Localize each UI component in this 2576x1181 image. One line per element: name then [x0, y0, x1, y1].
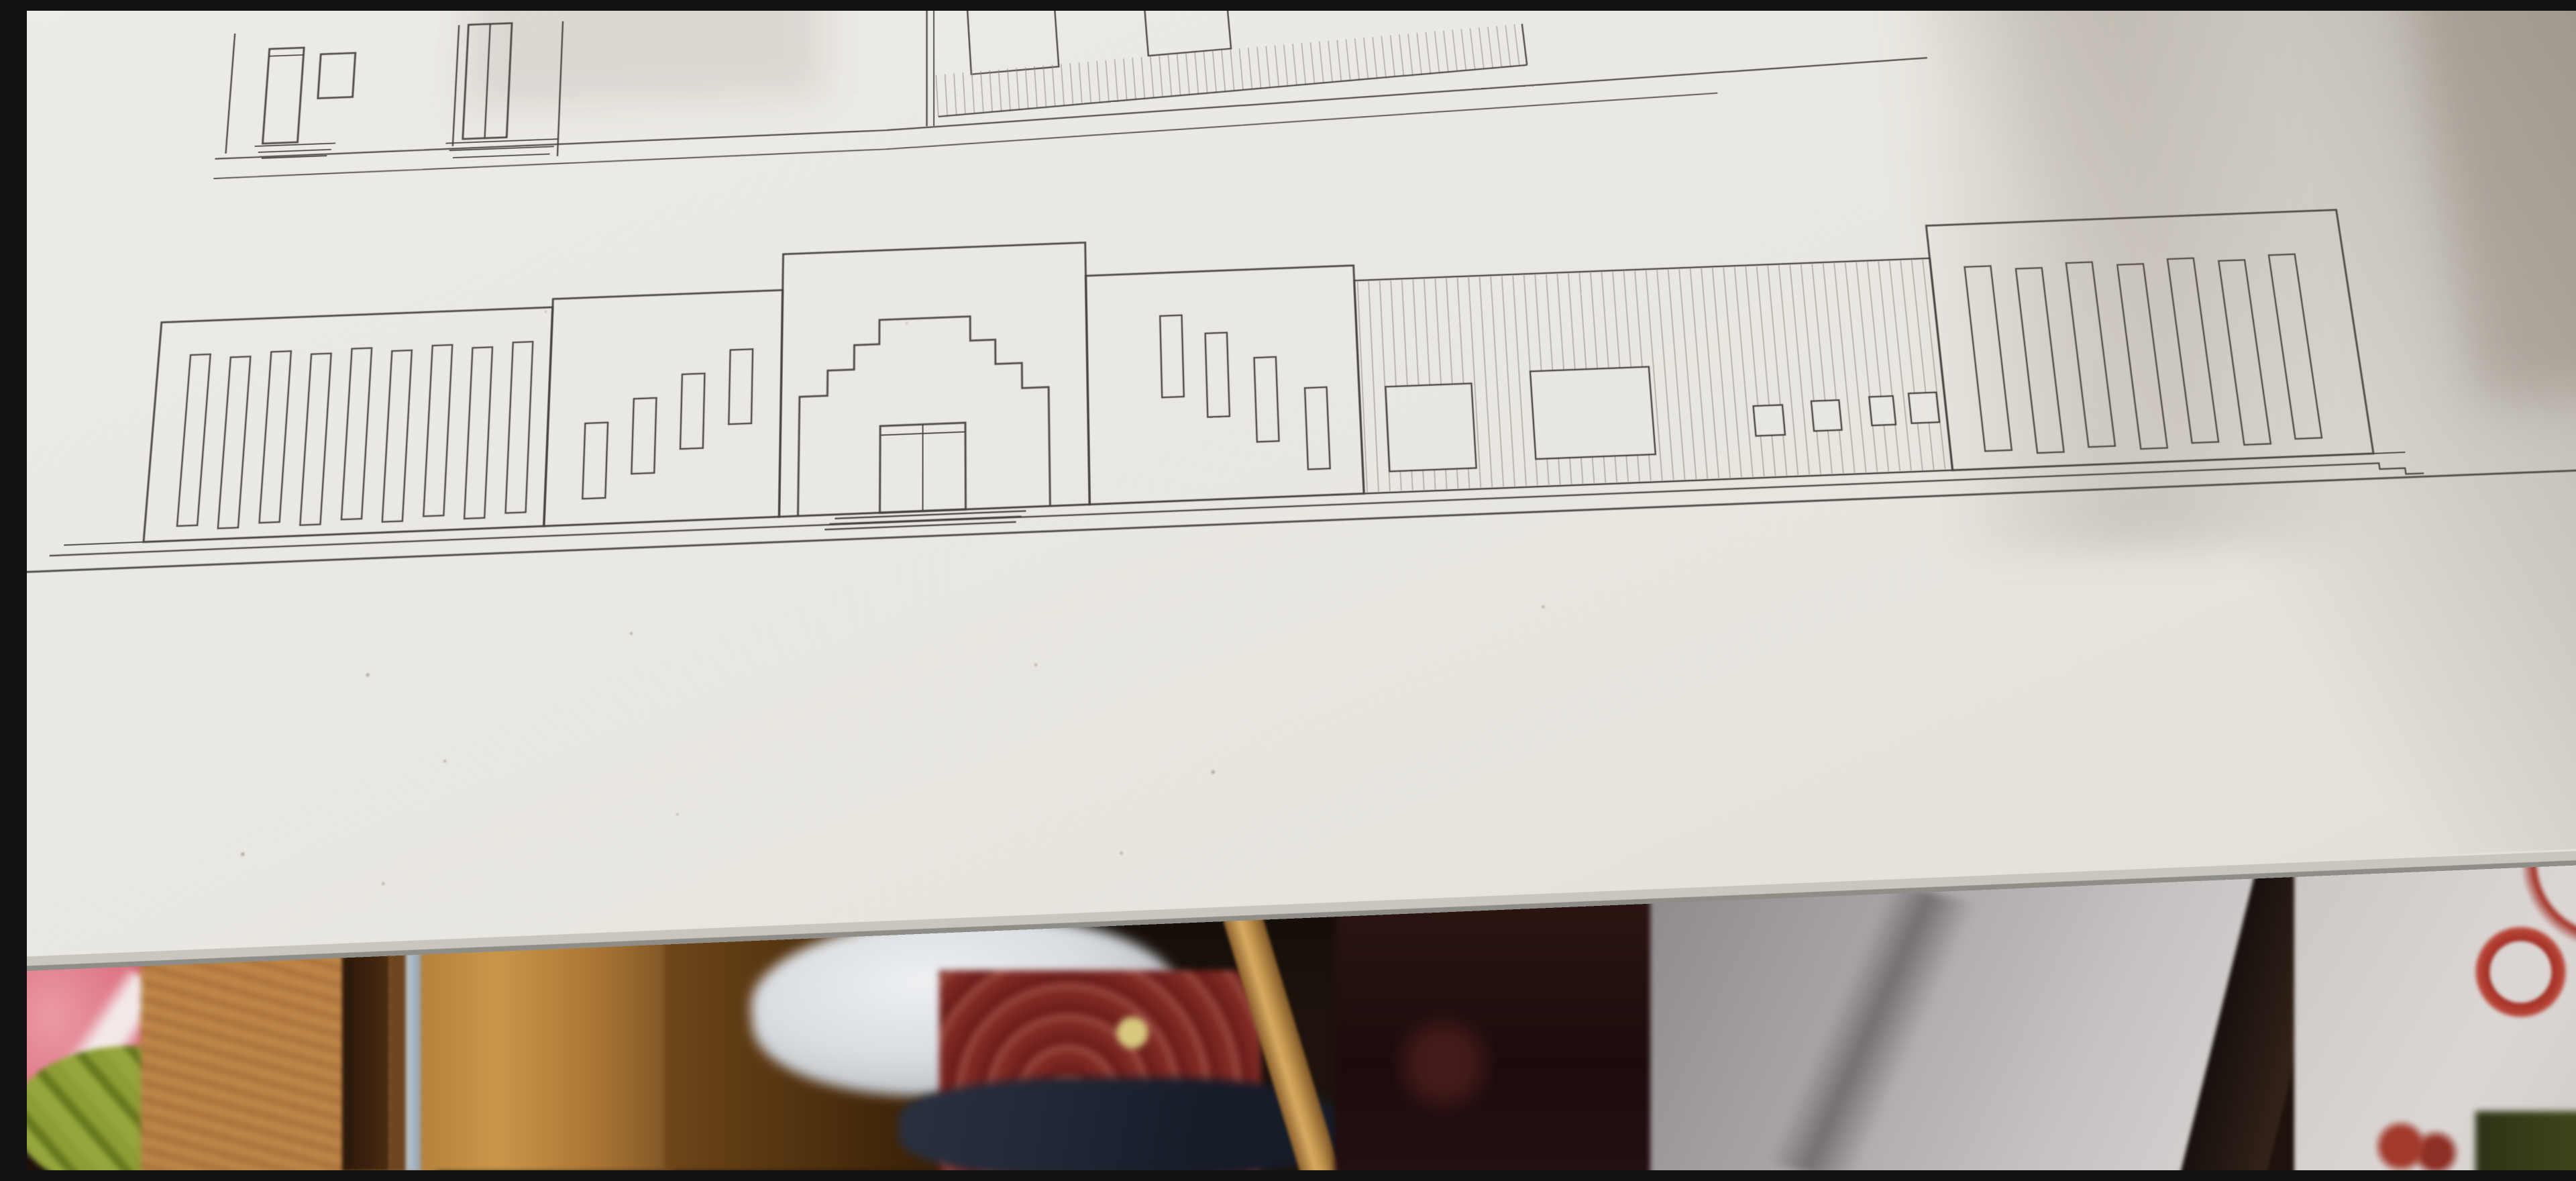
hatched-square-window-1: [1385, 383, 1476, 471]
upper-b-hatch-band-line: [936, 75, 938, 117]
right-building-slots-3: [2066, 262, 2115, 448]
upper-b-hatch-band-line: [1355, 38, 1359, 80]
upper-b-hatch-band-line: [1132, 58, 1136, 99]
right-building-slots-6: [2218, 260, 2271, 445]
upper-b-hatch-band-line: [1230, 49, 1234, 91]
upper-baseline-1: [215, 58, 1931, 159]
hatched-wall-hatching-line: [1868, 262, 1889, 471]
upper-a-step: [258, 150, 331, 152]
setback-window: [631, 398, 656, 474]
table-plane: [27, 11, 2576, 1170]
upper-b-hatch-band-line: [1364, 38, 1368, 79]
upper-b-hatch-band-line: [1043, 66, 1046, 107]
hatched-wall-hatching-line: [1746, 266, 1764, 476]
upper-b-hatch-band-line: [1257, 47, 1261, 89]
elevation-drawing: [27, 11, 2576, 1170]
left-building-slots-5: [341, 348, 372, 520]
left-building-slots-2: [218, 356, 251, 528]
hatched-wall-hatching-line: [1845, 263, 1866, 472]
hatched-small-opening: [1869, 396, 1896, 425]
upper-b-hatch-band-line: [1417, 33, 1421, 74]
upper-b-hatch-band-line: [1168, 54, 1171, 96]
upper-b-hatch-band-line: [945, 74, 948, 116]
upper-b-hatch-band-line: [1346, 39, 1350, 81]
right-mid-window: [1254, 357, 1279, 442]
right-building-outline: [1926, 210, 2373, 470]
right-building-slots-7: [2269, 254, 2322, 439]
upper-b-hatch-band-line: [1079, 62, 1081, 104]
setback-section-outline: [544, 290, 783, 526]
hatched-wall-hatching-line: [1912, 260, 1934, 470]
upper-b-hatch-band-line: [1034, 66, 1037, 108]
upper-b-hatch-band-line: [981, 71, 983, 113]
upper-b-hatch-band-line: [1293, 44, 1297, 85]
upper-b-hatch-band-line: [1373, 37, 1377, 79]
hatched-wall-hatching-line: [1878, 262, 1900, 471]
hatched-wall-hatching-line: [1900, 260, 1923, 470]
hatched-wall-hatching-line: [1757, 266, 1776, 476]
photo-of-architectural-sketch: Photograph of a hand-drawn pencil archit…: [27, 11, 2576, 1170]
upper-b-hatch-band-line: [1115, 59, 1118, 101]
hatched-wall-hatching-line: [1890, 261, 1911, 470]
upper-b-hatch-band-line: [1186, 53, 1189, 95]
setback-window: [680, 374, 704, 450]
left-building-slots-4: [300, 354, 331, 525]
right-mid-window: [1205, 333, 1230, 417]
ground-line: [27, 470, 2576, 572]
upper-b-hatch-band-line: [1159, 56, 1163, 97]
hatched-wall-hatching-line: [1768, 266, 1786, 475]
hatched-wall-hatching-line: [1834, 263, 1854, 472]
upper-b-hatch-band-line: [1328, 41, 1332, 83]
upper-b-hatch-band-line: [1248, 48, 1252, 89]
paper-dust-speck: [1542, 605, 1544, 608]
upper-b-hatch-band-line: [1275, 46, 1279, 87]
upper-b-hatch-band-line: [1381, 36, 1386, 78]
upper-b-hatch-band-line: [1435, 32, 1440, 73]
hatched-small-opening: [1754, 405, 1785, 435]
upper-b-hatch-band-line: [999, 70, 1002, 111]
upper-b-hatch-band-line: [1195, 52, 1198, 94]
upper-b-hatch-band-line: [1452, 30, 1457, 72]
left-building-slots-1: [177, 354, 211, 526]
upper-b-hatch-band-line: [1470, 28, 1474, 69]
hatched-small-opening: [1811, 400, 1842, 431]
upper-b-hatch-band-line: [989, 70, 992, 112]
upper-b-hatch-band-line: [1177, 54, 1181, 95]
hatched-wall-hatching-line: [1679, 269, 1696, 479]
hatched-square-window-2: [1530, 367, 1656, 460]
upper-b-hatch-band-line: [1026, 67, 1028, 109]
upper-b-hatch-band-line: [1088, 62, 1091, 103]
hatched-wall-hatching-line: [1368, 281, 1379, 492]
upper-b-hatch-band-line: [1399, 34, 1404, 76]
left-building-slots-3: [260, 351, 291, 523]
left-building-slots-7: [423, 345, 452, 517]
upper-b-hatch-band-line: [1141, 57, 1144, 99]
upper-b-hatch-band-line: [1408, 34, 1413, 75]
upper-b-hatch-band-line: [1479, 28, 1484, 68]
upper-b-hatch-band-line: [1461, 29, 1466, 70]
upper-b-hatch-band-line: [1150, 56, 1154, 98]
upper-b-hatch-band-line: [1301, 43, 1305, 85]
upper-b-hatch-band-line: [1284, 44, 1288, 86]
hatched-small-opening: [1909, 393, 1939, 423]
right-building-slots-4: [2117, 264, 2167, 449]
upper-b-hatch-band-line: [1222, 50, 1225, 92]
right-building-slots-1: [1965, 266, 2012, 451]
hatched-wall-hatching-line: [1491, 276, 1503, 486]
hatched-wall-hatching-line: [1502, 276, 1515, 486]
hatched-wall-hatching-line: [1701, 268, 1719, 478]
left-building-slots-8: [464, 347, 492, 519]
setback-window: [582, 423, 608, 499]
center-stepped-gable: [798, 313, 1050, 516]
upper-a-step2: [453, 154, 550, 158]
hatched-wall-hatching-line: [1790, 265, 1809, 474]
right-building-slots-5: [2167, 258, 2218, 443]
upper-b-hatch-band-line: [972, 72, 975, 113]
left-building-slots-9: [506, 342, 533, 513]
upper-b-hatch-band-line: [1016, 68, 1019, 109]
upper-b-hatch-band-line: [963, 72, 965, 114]
hatched-wall-hatching-line: [1690, 269, 1708, 479]
left-building-slots-6: [382, 350, 412, 522]
upper-b-hatch-band-line: [1124, 58, 1127, 100]
upper-b-hatch-band-line: [1266, 46, 1270, 88]
hatched-wall-hatching-line: [1480, 277, 1493, 487]
upper-b-hatch-band-line: [1203, 52, 1207, 93]
center-building-outline: [779, 242, 1089, 517]
upper-b-hatch-band-line: [1320, 42, 1324, 83]
upper-b-hatch-band-line: [1106, 60, 1109, 102]
upper-b-hatch-band-line: [1391, 36, 1395, 77]
right-building-slots-2: [2016, 268, 2064, 453]
hatched-wall-hatching-line: [1779, 265, 1799, 474]
upper-b-hatch-band-line: [1213, 51, 1216, 93]
upper-b-hatch-band-line: [1053, 65, 1055, 107]
upper-baseline-2: [213, 93, 1720, 178]
hatched-wall-hatching-line: [1735, 267, 1753, 477]
hatched-wall-hatching-line: [1812, 264, 1832, 474]
upper-b-hatch-band-line: [1444, 31, 1448, 72]
upper-b-hatch-band-line: [1310, 42, 1314, 84]
upper-b-hatch-band-line: [1337, 40, 1341, 82]
upper-b-hatch-band-line: [1061, 64, 1064, 105]
upper-b-hatch-band-line: [954, 73, 957, 115]
hatched-wall-hatching-line: [1723, 268, 1741, 478]
upper-b-hatch-band-line: [1097, 61, 1100, 103]
hatched-wall-hatching-line: [1856, 262, 1877, 472]
hatched-wall-hatching-line: [1801, 264, 1821, 474]
hatched-wall-hatching-line: [1713, 268, 1730, 478]
setback-window: [729, 349, 753, 424]
hatched-wall-hatching-line: [1823, 264, 1843, 473]
upper-b-hatch-band-line: [1239, 48, 1243, 90]
upper-b-hatch-band-line: [1070, 63, 1073, 105]
upper-b-hatch-band-line: [1008, 68, 1010, 110]
hatched-wall-hatching-line: [1513, 276, 1526, 486]
right-mid-window: [1305, 387, 1330, 470]
right-mid-window: [1160, 315, 1184, 398]
upper-b-hatch-band-line: [1426, 32, 1430, 74]
